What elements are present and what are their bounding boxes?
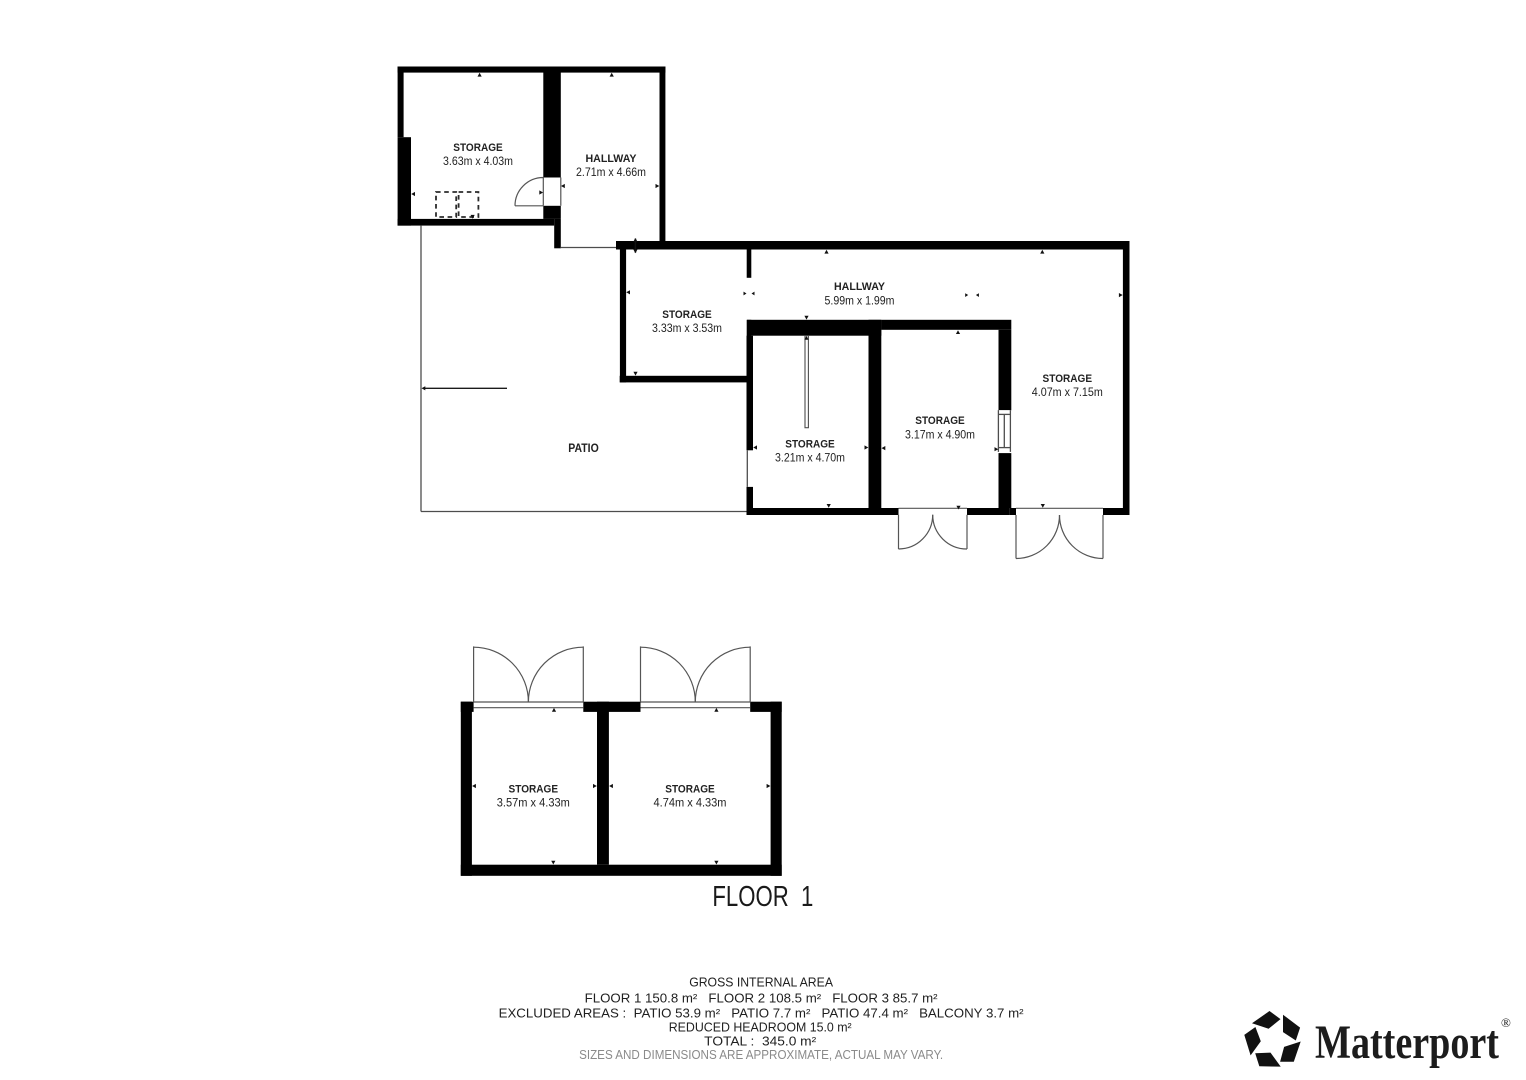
svg-text:STORAGE: STORAGE bbox=[785, 439, 835, 451]
svg-text:GROSS INTERNAL AREA: GROSS INTERNAL AREA bbox=[689, 975, 833, 990]
svg-text:FLOOR 1: FLOOR 1 bbox=[712, 881, 813, 913]
svg-text:HALLWAY: HALLWAY bbox=[586, 153, 637, 165]
svg-text:STORAGE: STORAGE bbox=[915, 415, 965, 427]
svg-text:HALLWAY: HALLWAY bbox=[834, 281, 885, 293]
svg-text:EXCLUDED AREAS : PATIO 53.9 m: EXCLUDED AREAS : PATIO 53.9 m² PATIO 7.7… bbox=[499, 1005, 1025, 1020]
svg-text:Matterport: Matterport bbox=[1315, 1016, 1499, 1069]
svg-text:SIZES AND DIMENSIONS ARE APPRO: SIZES AND DIMENSIONS ARE APPROXIMATE, AC… bbox=[579, 1047, 943, 1062]
svg-text:STORAGE: STORAGE bbox=[509, 784, 559, 796]
svg-text:REDUCED HEADROOM 15.0 m²: REDUCED HEADROOM 15.0 m² bbox=[669, 1020, 853, 1035]
svg-text:®: ® bbox=[1501, 1015, 1511, 1030]
svg-text:3.57m x 4.33m: 3.57m x 4.33m bbox=[497, 796, 570, 810]
svg-text:4.07m x 7.15m: 4.07m x 7.15m bbox=[1032, 385, 1103, 399]
svg-text:3.63m x 4.03m: 3.63m x 4.03m bbox=[443, 154, 513, 168]
svg-text:3.17m x 4.90m: 3.17m x 4.90m bbox=[905, 427, 975, 441]
svg-text:STORAGE: STORAGE bbox=[662, 309, 712, 321]
svg-text:PATIO: PATIO bbox=[568, 443, 599, 455]
svg-text:STORAGE: STORAGE bbox=[665, 784, 715, 796]
svg-text:2.71m x 4.66m: 2.71m x 4.66m bbox=[576, 165, 646, 179]
svg-text:STORAGE: STORAGE bbox=[1043, 373, 1093, 385]
svg-text:FLOOR 1 150.8 m² FLOOR 2 108: FLOOR 1 150.8 m² FLOOR 2 108.5 m² FLOOR … bbox=[585, 991, 939, 1006]
svg-text:3.21m x 4.70m: 3.21m x 4.70m bbox=[775, 451, 845, 465]
svg-text:4.74m x 4.33m: 4.74m x 4.33m bbox=[654, 796, 727, 810]
svg-text:STORAGE: STORAGE bbox=[453, 142, 503, 154]
svg-text:3.33m x 3.53m: 3.33m x 3.53m bbox=[652, 321, 722, 335]
svg-text:5.99m x 1.99m: 5.99m x 1.99m bbox=[825, 293, 895, 307]
